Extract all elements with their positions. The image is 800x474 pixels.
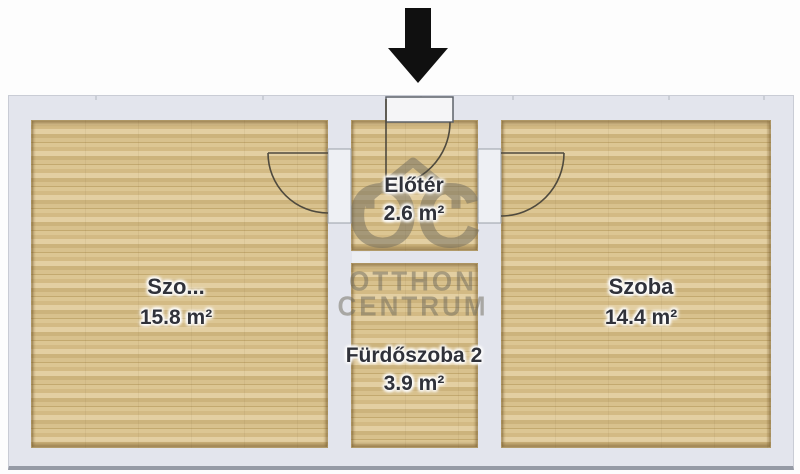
room-area: 15.8 m² xyxy=(76,305,276,331)
entrance-doorway xyxy=(386,97,453,122)
room-name: Szo... xyxy=(76,274,276,300)
entrance-arrow-icon xyxy=(388,48,448,83)
room-label-left: Szo... 15.8 m² xyxy=(76,274,276,331)
floor-plan-image: OC OTTHON CENTRUM xyxy=(0,0,800,474)
dimension-ticks xyxy=(96,96,764,100)
entrance-arrow-shaft xyxy=(405,8,431,50)
room-label-right: Szoba 14.4 m² xyxy=(541,274,741,331)
room-area: 2.6 m² xyxy=(339,201,489,227)
room-label-bath: Fürdőszoba 2 3.9 m² xyxy=(321,343,507,397)
bath-door-opening xyxy=(352,252,370,263)
room-name: Szoba xyxy=(541,274,741,300)
room-name: Fürdőszoba 2 xyxy=(321,343,507,369)
room-name: Előtér xyxy=(339,173,489,199)
room-area: 14.4 m² xyxy=(541,305,741,331)
floor-plan: OC OTTHON CENTRUM xyxy=(8,95,794,470)
room-area: 3.9 m² xyxy=(321,371,507,397)
room-label-entry: Előtér 2.6 m² xyxy=(339,173,489,227)
